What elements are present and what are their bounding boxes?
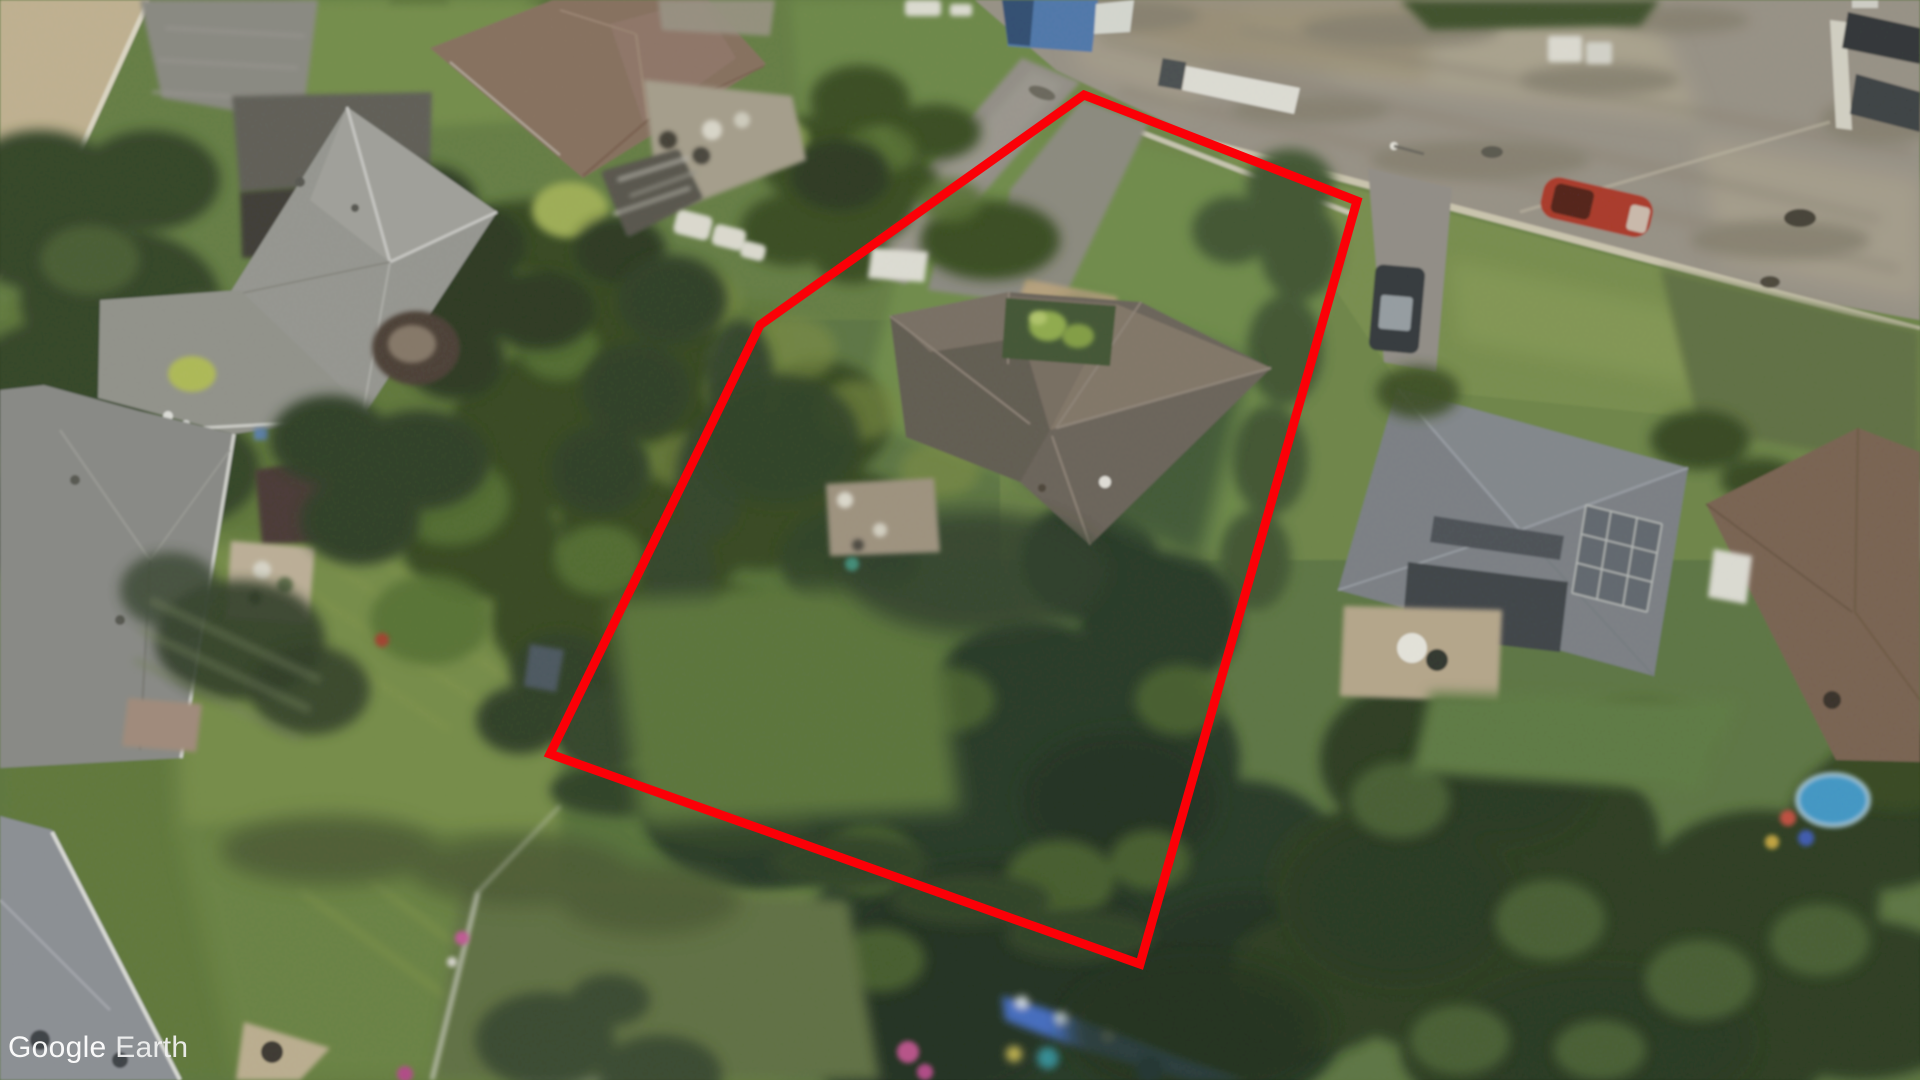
svg-text:Google Earth: Google Earth [8,1031,188,1064]
